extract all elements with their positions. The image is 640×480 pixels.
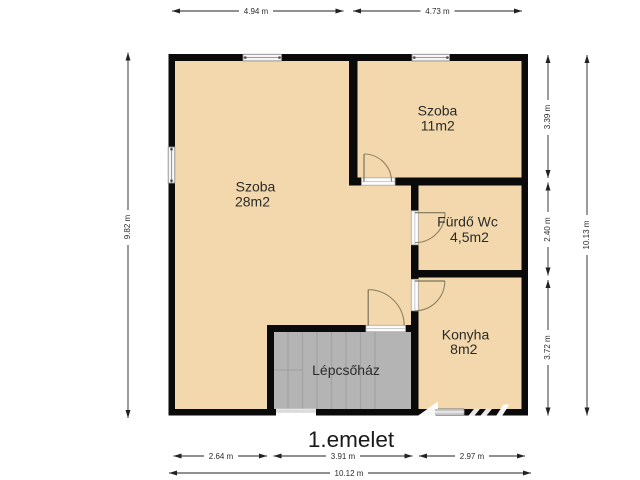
svg-text:4,5m2: 4,5m2	[450, 229, 489, 245]
svg-text:4.73 m: 4.73 m	[425, 7, 450, 16]
svg-text:4.94 m: 4.94 m	[244, 7, 269, 16]
svg-text:2.40 m: 2.40 m	[543, 217, 552, 242]
svg-text:11m2: 11m2	[421, 118, 455, 134]
svg-text:2.97 m: 2.97 m	[460, 452, 485, 461]
svg-text:Szoba: Szoba	[236, 179, 276, 195]
svg-text:3.91 m: 3.91 m	[331, 452, 356, 461]
svg-text:3.72 m: 3.72 m	[543, 335, 552, 360]
svg-text:Szoba: Szoba	[418, 103, 458, 119]
svg-text:Fürdő Wc: Fürdő Wc	[437, 214, 498, 230]
svg-text:2.64 m: 2.64 m	[209, 452, 234, 461]
svg-text:28m2: 28m2	[235, 194, 270, 210]
svg-text:1.emelet: 1.emelet	[308, 427, 395, 452]
svg-text:10.12 m: 10.12 m	[335, 469, 364, 478]
svg-text:8m2: 8m2	[450, 341, 477, 357]
svg-text:9.82 m: 9.82 m	[123, 214, 132, 239]
svg-text:10.13 m: 10.13 m	[582, 220, 591, 249]
svg-text:3.39 m: 3.39 m	[543, 104, 552, 129]
svg-text:Lépcsőház: Lépcsőház	[312, 362, 380, 378]
